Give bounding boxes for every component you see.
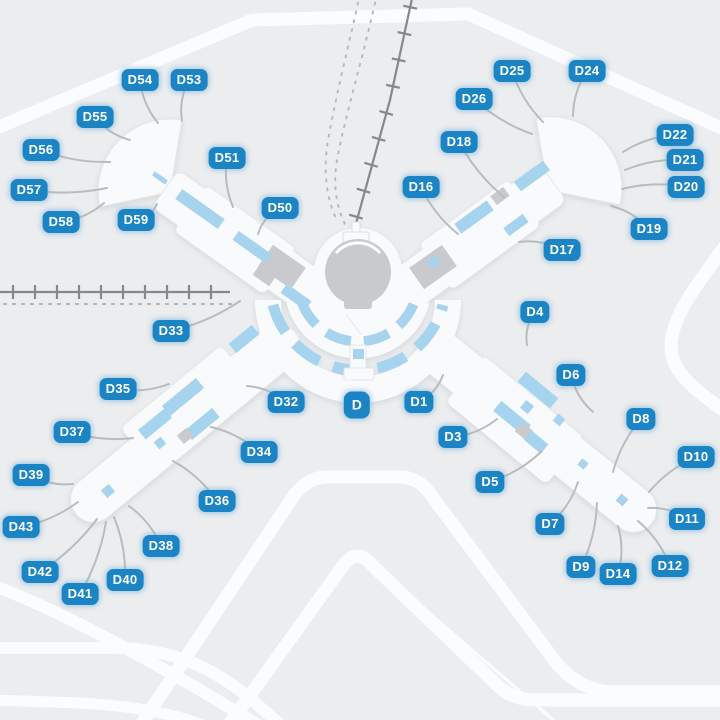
gate-label-d12[interactable]: D12 bbox=[652, 555, 689, 577]
gate-label-d59[interactable]: D59 bbox=[118, 209, 155, 231]
gate-label-d40[interactable]: D40 bbox=[107, 569, 144, 591]
gate-label-d37[interactable]: D37 bbox=[54, 421, 91, 443]
gate-label-d35[interactable]: D35 bbox=[100, 378, 137, 400]
gate-label-d9[interactable]: D9 bbox=[566, 556, 595, 578]
gate-label-d33[interactable]: D33 bbox=[153, 320, 190, 342]
terminal-center-label[interactable]: D bbox=[344, 392, 370, 419]
gate-label-d34[interactable]: D34 bbox=[241, 441, 278, 463]
gate-label-d22[interactable]: D22 bbox=[657, 124, 694, 146]
gate-label-d19[interactable]: D19 bbox=[631, 218, 668, 240]
gate-label-d8[interactable]: D8 bbox=[626, 408, 655, 430]
gate-label-d53[interactable]: D53 bbox=[171, 69, 208, 91]
terminal-map: D54D53D55D56D57D58D59D51D50D33D35D37D39D… bbox=[0, 0, 720, 720]
gate-label-d51[interactable]: D51 bbox=[209, 147, 246, 169]
south-pedestal bbox=[344, 368, 374, 380]
gate-label-d14[interactable]: D14 bbox=[600, 563, 637, 585]
gate-label-d6[interactable]: D6 bbox=[556, 364, 585, 386]
gate-label-d32[interactable]: D32 bbox=[268, 391, 305, 413]
gate-label-d57[interactable]: D57 bbox=[11, 179, 48, 201]
gate-label-d39[interactable]: D39 bbox=[13, 464, 50, 486]
gate-label-d41[interactable]: D41 bbox=[62, 583, 99, 605]
rotunda-dome-base bbox=[344, 293, 372, 309]
gate-label-d5[interactable]: D5 bbox=[475, 471, 504, 493]
gate-label-d7[interactable]: D7 bbox=[535, 513, 564, 535]
gate-label-d42[interactable]: D42 bbox=[22, 561, 59, 583]
gate-label-d26[interactable]: D26 bbox=[456, 88, 493, 110]
gate-label-d38[interactable]: D38 bbox=[143, 535, 180, 557]
gate-label-d25[interactable]: D25 bbox=[494, 60, 531, 82]
gate-label-d4[interactable]: D4 bbox=[520, 301, 549, 323]
south-stem-walkway bbox=[353, 349, 364, 359]
gate-label-d18[interactable]: D18 bbox=[441, 131, 478, 153]
gate-label-d55[interactable]: D55 bbox=[77, 106, 114, 128]
gate-label-d43[interactable]: D43 bbox=[3, 516, 40, 538]
gate-label-d11[interactable]: D11 bbox=[669, 508, 705, 530]
gate-label-d36[interactable]: D36 bbox=[199, 490, 236, 512]
gate-label-d58[interactable]: D58 bbox=[43, 211, 80, 233]
gate-label-d3[interactable]: D3 bbox=[438, 426, 467, 448]
gate-label-d54[interactable]: D54 bbox=[122, 69, 159, 91]
gate-label-d20[interactable]: D20 bbox=[668, 176, 705, 198]
gate-label-d17[interactable]: D17 bbox=[544, 239, 581, 261]
gate-label-d50[interactable]: D50 bbox=[262, 197, 299, 219]
gate-label-d10[interactable]: D10 bbox=[678, 446, 715, 468]
gate-label-d16[interactable]: D16 bbox=[403, 176, 440, 198]
gate-label-d24[interactable]: D24 bbox=[569, 60, 606, 82]
gate-label-d1[interactable]: D1 bbox=[404, 391, 433, 413]
gate-label-d21[interactable]: D21 bbox=[667, 149, 704, 171]
gate-label-d56[interactable]: D56 bbox=[23, 139, 60, 161]
